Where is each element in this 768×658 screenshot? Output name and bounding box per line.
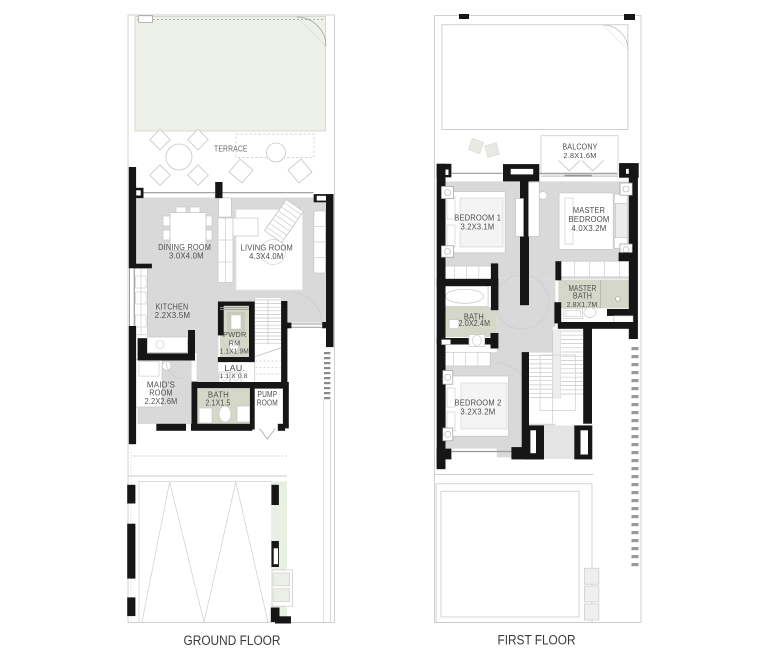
svg-text:2.0X2.4M: 2.0X2.4M [459, 319, 491, 328]
svg-text:FIRST FLOOR: FIRST FLOOR [498, 633, 576, 649]
svg-text:RM: RM [229, 338, 241, 347]
svg-text:2.8X1.6M: 2.8X1.6M [563, 151, 596, 160]
svg-text:BATH: BATH [573, 291, 592, 300]
svg-text:ROOM: ROOM [257, 399, 278, 408]
svg-text:BEDROOM: BEDROOM [569, 215, 610, 224]
svg-text:BEDROOM 2: BEDROOM 2 [455, 398, 502, 407]
svg-text:KITCHEN: KITCHEN [156, 303, 189, 312]
svg-text:BEDROOM 1: BEDROOM 1 [454, 214, 501, 223]
svg-text:1.1 X 0.8: 1.1 X 0.8 [220, 373, 248, 380]
svg-text:2.8X1.7M: 2.8X1.7M [567, 300, 598, 309]
svg-text:4.0X3.2M: 4.0X3.2M [571, 224, 606, 233]
svg-text:3.0X4.0M: 3.0X4.0M [169, 251, 204, 260]
svg-text:3.2X3.2M: 3.2X3.2M [460, 408, 495, 417]
svg-text:1.1X1.9M: 1.1X1.9M [220, 349, 249, 356]
svg-text:MASTER: MASTER [573, 206, 605, 215]
svg-text:GROUND FLOOR: GROUND FLOOR [184, 633, 281, 649]
svg-text:LAU.: LAU. [224, 364, 245, 373]
svg-text:2.2X3.5M: 2.2X3.5M [155, 311, 191, 320]
svg-text:2.1X1.5: 2.1X1.5 [206, 399, 231, 408]
svg-text:3.2X3.1M: 3.2X3.1M [461, 222, 495, 231]
svg-text:2.2X2.6M: 2.2X2.6M [145, 397, 178, 406]
svg-text:4.3X4.0M: 4.3X4.0M [249, 252, 283, 261]
svg-text:TERRACE: TERRACE [214, 145, 248, 154]
